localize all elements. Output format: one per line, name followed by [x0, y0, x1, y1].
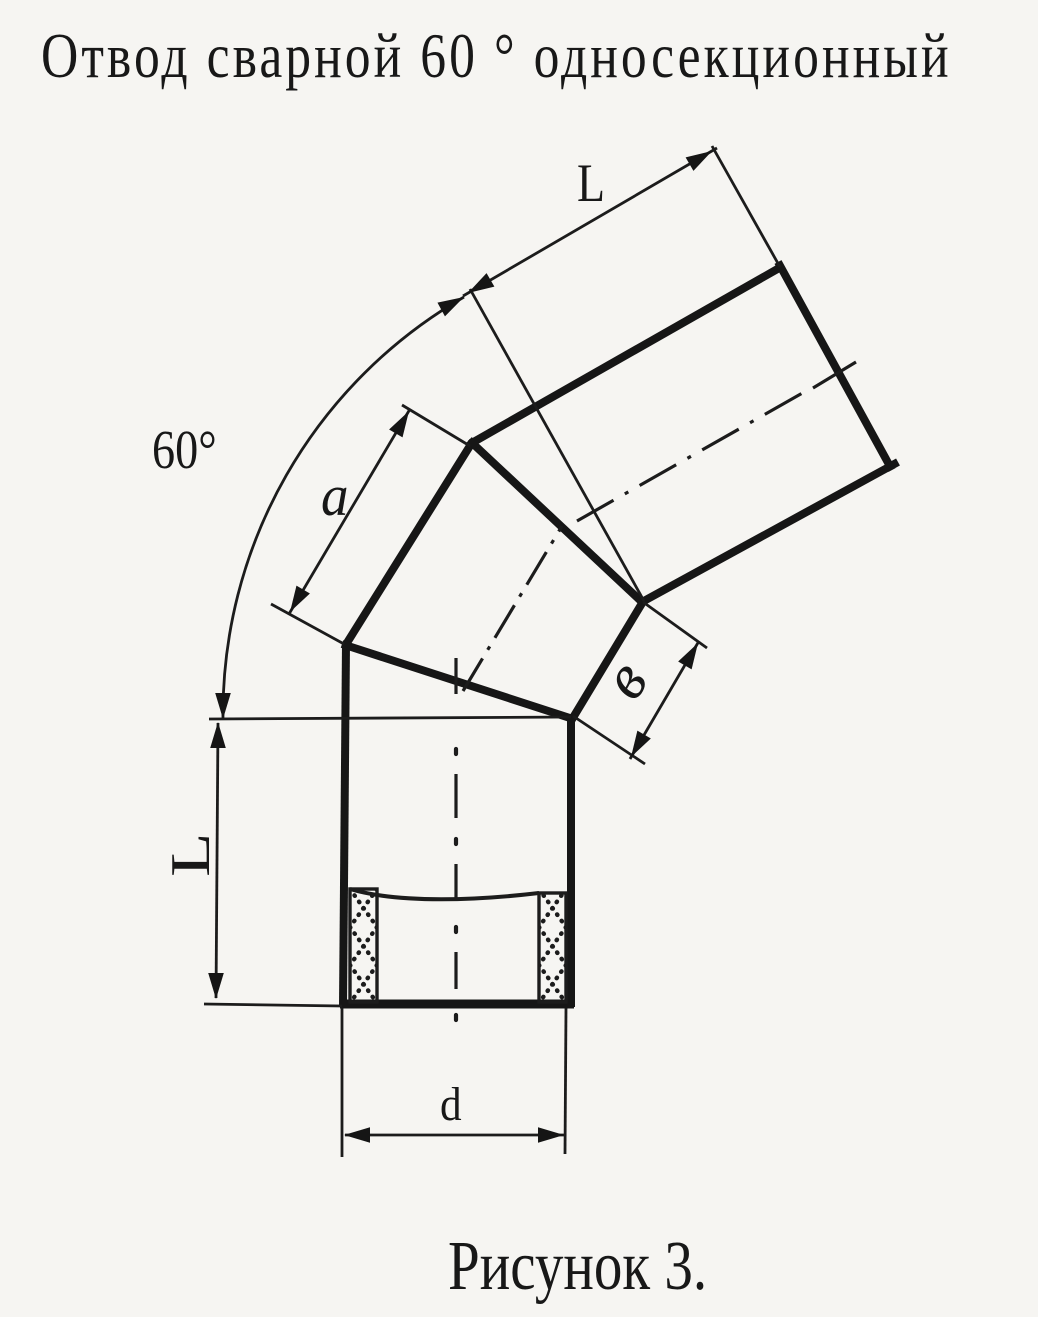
svg-text:a: a — [321, 465, 349, 529]
svg-text:d: d — [440, 1077, 462, 1131]
svg-text:L: L — [160, 833, 222, 877]
svg-text:60°: 60° — [152, 419, 217, 480]
svg-text:Отвод сварной 60 ° односекцион: Отвод сварной 60 ° односекционный — [41, 22, 952, 91]
svg-text:L: L — [577, 153, 605, 213]
svg-text:Рисунок 3.: Рисунок 3. — [448, 1227, 707, 1305]
